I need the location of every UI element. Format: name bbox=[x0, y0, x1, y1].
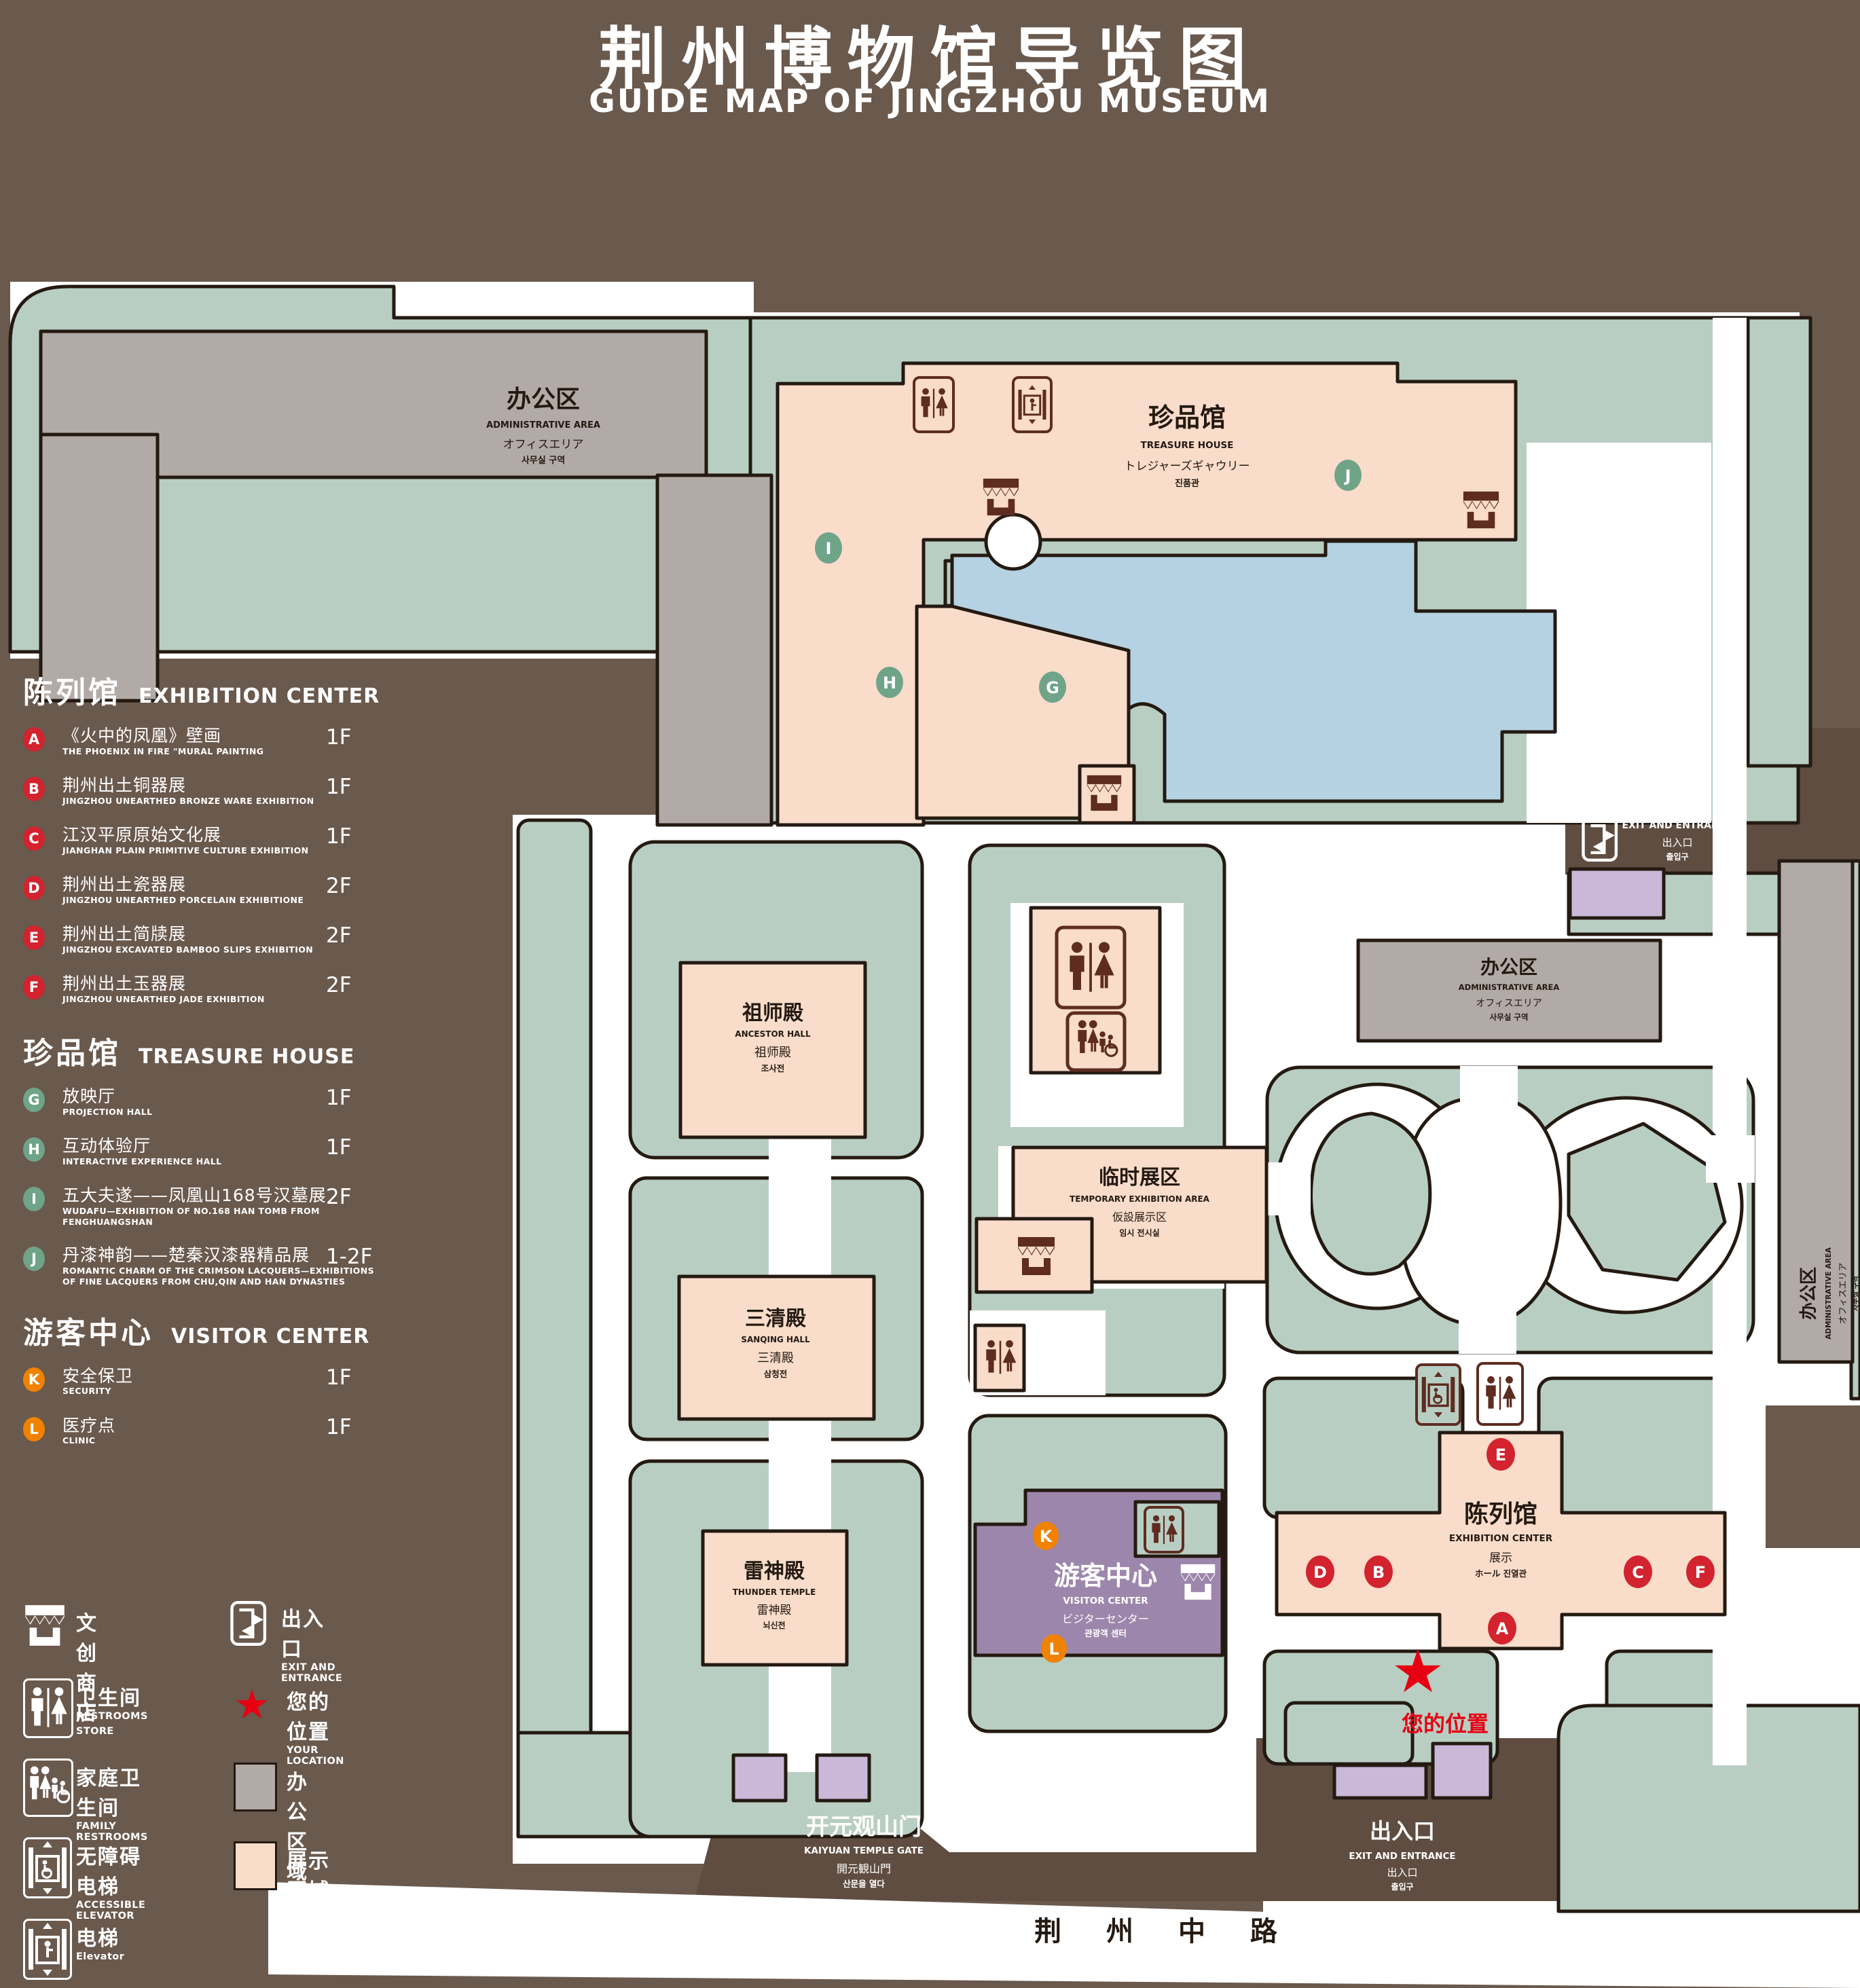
map-marker-e: E bbox=[1487, 1438, 1515, 1471]
map-marker-h: H bbox=[876, 667, 903, 698]
svg-text:B: B bbox=[1372, 1563, 1385, 1582]
svg-text:办公区: 办公区 bbox=[1480, 956, 1537, 978]
svg-text:TEMPORARY EXHIBITION AREA: TEMPORARY EXHIBITION AREA bbox=[1070, 1194, 1210, 1204]
svg-text:사무실 구역: 사무실 구역 bbox=[522, 455, 565, 466]
marker-badge-g: G bbox=[23, 1088, 45, 1112]
legend-section-header: 珍品馆 TREASURE HOUSE bbox=[23, 1029, 505, 1072]
map-marker-c: C bbox=[1624, 1556, 1652, 1588]
svg-text:ANCESTOR HALL: ANCESTOR HALL bbox=[735, 1029, 811, 1039]
floor-label: 1F bbox=[326, 824, 352, 849]
marker-badge-l: L bbox=[23, 1417, 45, 1441]
floor-label: 2F bbox=[326, 973, 352, 997]
svg-text:办公区: 办公区 bbox=[1799, 1267, 1819, 1320]
svg-text:조사전: 조사전 bbox=[761, 1063, 785, 1073]
building-mid-store bbox=[977, 1219, 1092, 1292]
marker-badge-d: D bbox=[23, 876, 45, 900]
legend-item-l: L 医疗点 CLINIC 1F bbox=[23, 1416, 505, 1448]
legend-item-g: G 放映厅 PROJECTION HALL 1F bbox=[23, 1087, 505, 1118]
svg-text:ADMINISTRATIVE AREA: ADMINISTRATIVE AREA bbox=[1825, 1247, 1833, 1339]
accessible-elevator-icon bbox=[23, 1837, 72, 1898]
svg-text:祖师殿: 祖师殿 bbox=[742, 1001, 803, 1025]
accessible-elevator-icon bbox=[1417, 1365, 1460, 1424]
svg-text:뇌신전: 뇌신전 bbox=[763, 1620, 785, 1630]
marker-badge-i: I bbox=[23, 1187, 45, 1211]
svg-text:三清殿: 三清殿 bbox=[757, 1351, 794, 1365]
legend-section-header: 游客中心 VISITOR CENTER bbox=[23, 1308, 505, 1352]
svg-text:C: C bbox=[1632, 1563, 1644, 1582]
svg-text:E: E bbox=[1495, 1446, 1506, 1465]
svg-text:임시 전시실: 임시 전시실 bbox=[1119, 1228, 1159, 1238]
svg-text:SANQING HALL: SANQING HALL bbox=[741, 1335, 810, 1344]
marker-badge-k: K bbox=[23, 1367, 45, 1392]
svg-text:出入口: 出入口 bbox=[1387, 1866, 1417, 1879]
building-thunder-temple bbox=[703, 1531, 847, 1665]
section-title-en: EXHIBITION CENTER bbox=[139, 684, 380, 708]
legend-item-f: F 荆州出土玉器展 JINGZHOU UNEARTHED JADE EXHIBI… bbox=[23, 974, 505, 1006]
map-marker-l: L bbox=[1041, 1634, 1067, 1663]
svg-text:THUNDER TEMPLE: THUNDER TEMPLE bbox=[733, 1587, 816, 1597]
svg-text:G: G bbox=[1046, 678, 1059, 697]
svg-text:L: L bbox=[1048, 1640, 1059, 1659]
svg-text:TREASURE HOUSE: TREASURE HOUSE bbox=[1141, 440, 1234, 451]
svg-text:관광객 센터: 관광객 센터 bbox=[1084, 1628, 1127, 1638]
restrooms-icon bbox=[1478, 1363, 1522, 1424]
marker-badge-b: B bbox=[23, 777, 45, 801]
svg-text:진품관: 진품관 bbox=[1175, 478, 1199, 489]
svg-text:珍品馆: 珍品馆 bbox=[1148, 403, 1226, 432]
marker-badge-e: E bbox=[23, 925, 45, 950]
svg-text:雷神殿: 雷神殿 bbox=[744, 1560, 805, 1583]
svg-text:雷神殿: 雷神殿 bbox=[757, 1604, 792, 1617]
svg-text:ホール 진열관: ホール 진열관 bbox=[1475, 1568, 1527, 1579]
location-star-icon: ★ bbox=[1391, 1636, 1445, 1706]
svg-text:J: J bbox=[1344, 466, 1351, 485]
floor-label: 1-2F bbox=[326, 1245, 372, 1269]
legend-section-header: 陈列馆 EXHIBITION CENTER bbox=[23, 668, 505, 712]
svg-text:A: A bbox=[1496, 1619, 1509, 1638]
map-marker-j: J bbox=[1334, 460, 1362, 491]
location-star-icon: ★ bbox=[234, 1682, 270, 1727]
svg-text:H: H bbox=[883, 674, 896, 693]
svg-text:仮設展示区: 仮設展示区 bbox=[1112, 1211, 1167, 1223]
label-road: 荆 州 中 路 bbox=[1034, 1916, 1295, 1947]
exit-icon bbox=[228, 1600, 273, 1647]
floor-label: 1F bbox=[326, 1365, 352, 1390]
legend-item-e: E 荆州出土简牍展 JINGZHOU EXCAVATED BAMBOO SLIP… bbox=[23, 925, 505, 956]
floor-label: 2F bbox=[326, 874, 352, 898]
svg-text:出入口: 出入口 bbox=[1370, 1818, 1435, 1844]
svg-text:VISITOR CENTER: VISITOR CENTER bbox=[1063, 1596, 1148, 1606]
svg-text:開元観山門: 開元観山門 bbox=[837, 1862, 891, 1875]
legend-item-d: D 荆州出土瓷器展 JINGZHOU UNEARTHED PORCELAIN E… bbox=[23, 875, 505, 906]
floor-label: 1F bbox=[326, 725, 352, 750]
svg-text:临时展区: 临时展区 bbox=[1099, 1166, 1180, 1190]
svg-text:사무실 구역: 사무실 구역 bbox=[1490, 1012, 1529, 1022]
restrooms-icon bbox=[1057, 927, 1125, 1008]
legend-item-k: K 安全保卫 SECURITY 1F bbox=[23, 1367, 505, 1398]
marker-badge-j: J bbox=[23, 1247, 45, 1271]
building-sanqing-hall bbox=[679, 1276, 874, 1419]
legend-item-j: J 丹漆神韵——楚秦汉漆器精品展 ROMANTIC CHARM OF THE C… bbox=[23, 1246, 505, 1287]
floor-label: 2F bbox=[326, 923, 352, 948]
svg-text:出入口: 出入口 bbox=[1662, 836, 1692, 849]
map-marker-k: K bbox=[1033, 1522, 1059, 1550]
svg-text:D: D bbox=[1313, 1563, 1327, 1582]
map-marker-d: D bbox=[1306, 1556, 1334, 1588]
svg-text:陈列馆: 陈列馆 bbox=[1464, 1501, 1537, 1528]
svg-text:出入口: 出入口 bbox=[1643, 788, 1712, 815]
restrooms-icon bbox=[23, 1678, 73, 1738]
store-icon bbox=[23, 1604, 67, 1647]
elevator-icon bbox=[23, 1919, 72, 1980]
restrooms-icon bbox=[1145, 1507, 1183, 1552]
marker-badge-h: H bbox=[23, 1137, 45, 1162]
svg-text:EXIT AND ENTRANCE: EXIT AND ENTRANCE bbox=[1622, 820, 1732, 831]
floor-label: 1F bbox=[326, 1135, 352, 1160]
floor-label: 1F bbox=[326, 1415, 352, 1439]
svg-text:삼청전: 삼청전 bbox=[764, 1369, 788, 1379]
svg-text:사무실 구역: 사무실 구역 bbox=[1851, 1276, 1860, 1311]
elevator-icon bbox=[1013, 378, 1051, 432]
svg-text:祖师殿: 祖师殿 bbox=[754, 1046, 791, 1060]
map-marker-b: B bbox=[1364, 1556, 1393, 1588]
legend-item-i: I 五大夫遂——凤凰山168号汉墓展 WUDAFU—EXHIBITION OF … bbox=[23, 1186, 505, 1228]
svg-text:K: K bbox=[1040, 1527, 1053, 1546]
svg-text:출입구: 출입구 bbox=[1391, 1881, 1413, 1892]
svg-text:办公区: 办公区 bbox=[507, 386, 580, 413]
map-marker-i: I bbox=[815, 532, 842, 564]
svg-text:オフィスエリア: オフィスエリア bbox=[1838, 1263, 1848, 1325]
svg-text:EXHIBITION CENTER: EXHIBITION CENTER bbox=[1449, 1533, 1553, 1544]
family-restrooms-icon bbox=[1068, 1013, 1125, 1070]
svg-text:ビジターセンター: ビジターセンター bbox=[1062, 1613, 1149, 1625]
svg-text:三清殿: 三清殿 bbox=[745, 1307, 806, 1331]
svg-text:开元观山门: 开元观山门 bbox=[806, 1814, 922, 1841]
family-restrooms-icon bbox=[23, 1759, 73, 1817]
svg-text:トレジャーズギャウリー: トレジャーズギャウリー bbox=[1124, 460, 1250, 473]
svg-text:EXIT AND ENTRANCE: EXIT AND ENTRANCE bbox=[1349, 1851, 1455, 1862]
office-area-swatch bbox=[234, 1763, 277, 1811]
svg-text:游客中心: 游客中心 bbox=[1054, 1561, 1157, 1591]
fountain bbox=[986, 515, 1040, 569]
legend-item-h: H 互动体验厅 INTERACTIVE EXPERIENCE HALL 1F bbox=[23, 1137, 505, 1168]
marker-badge-f: F bbox=[23, 975, 45, 999]
section-title-zh: 陈列馆 bbox=[23, 668, 121, 712]
svg-text:F: F bbox=[1695, 1563, 1706, 1582]
svg-text:ADMINISTRATIVE AREA: ADMINISTRATIVE AREA bbox=[486, 420, 600, 430]
svg-text:산문을 열다: 산문을 열다 bbox=[843, 1879, 885, 1889]
floor-label: 1F bbox=[326, 1086, 352, 1110]
legend-section-visitor-center: 游客中心 VISITOR CENTER K 安全保卫 SECURITY 1F L… bbox=[23, 1308, 505, 1448]
legend-section-treasure-house: 珍品馆 TREASURE HOUSE G 放映厅 PROJECTION HALL… bbox=[23, 1029, 505, 1288]
svg-text:I: I bbox=[826, 539, 832, 558]
marker-badge-c: C bbox=[23, 826, 45, 851]
marker-badge-a: A bbox=[23, 727, 45, 752]
display-area-swatch bbox=[234, 1841, 277, 1890]
restrooms-icon bbox=[914, 378, 953, 432]
svg-text:KAIYUAN TEMPLE GATE: KAIYUAN TEMPLE GATE bbox=[804, 1845, 924, 1856]
floor-label: 1F bbox=[326, 775, 352, 799]
map-marker-g: G bbox=[1039, 671, 1066, 703]
map-marker-a: A bbox=[1488, 1612, 1516, 1644]
legend-section-exhibition-center: 陈列馆 EXHIBITION CENTER A 《火中的凤凰》壁画 THE PH… bbox=[23, 668, 505, 1006]
legend: 陈列馆 EXHIBITION CENTER A 《火中的凤凰》壁画 THE PH… bbox=[23, 668, 505, 1466]
svg-text:展示: 展示 bbox=[1489, 1551, 1512, 1565]
your-location-label: 您的位置 bbox=[1402, 1711, 1489, 1737]
legend-item-b: B 荆州出土铜器展 JINGZHOU UNEARTHED BRONZE WARE… bbox=[23, 776, 505, 807]
svg-text:オフィスエリア: オフィスエリア bbox=[1476, 998, 1542, 1009]
legend-item-c: C 江汉平原原始文化展 JIANGHAN PLAIN PRIMITIVE CUL… bbox=[23, 826, 505, 857]
svg-text:オフィスエリア: オフィスエリア bbox=[503, 438, 584, 452]
svg-text:ADMINISTRATIVE AREA: ADMINISTRATIVE AREA bbox=[1459, 982, 1560, 992]
svg-text:출입구: 출입구 bbox=[1666, 851, 1688, 862]
legend-item-a: A 《火中的凤凰》壁画 THE PHOENIX IN FIRE "MURAL P… bbox=[23, 726, 505, 758]
map-marker-f: F bbox=[1686, 1556, 1715, 1588]
floor-label: 2F bbox=[326, 1185, 352, 1209]
guide-map-page: 荆州博物馆导览图 GUIDE MAP OF JINGZHOU MUSEUM bbox=[0, 0, 1860, 1988]
